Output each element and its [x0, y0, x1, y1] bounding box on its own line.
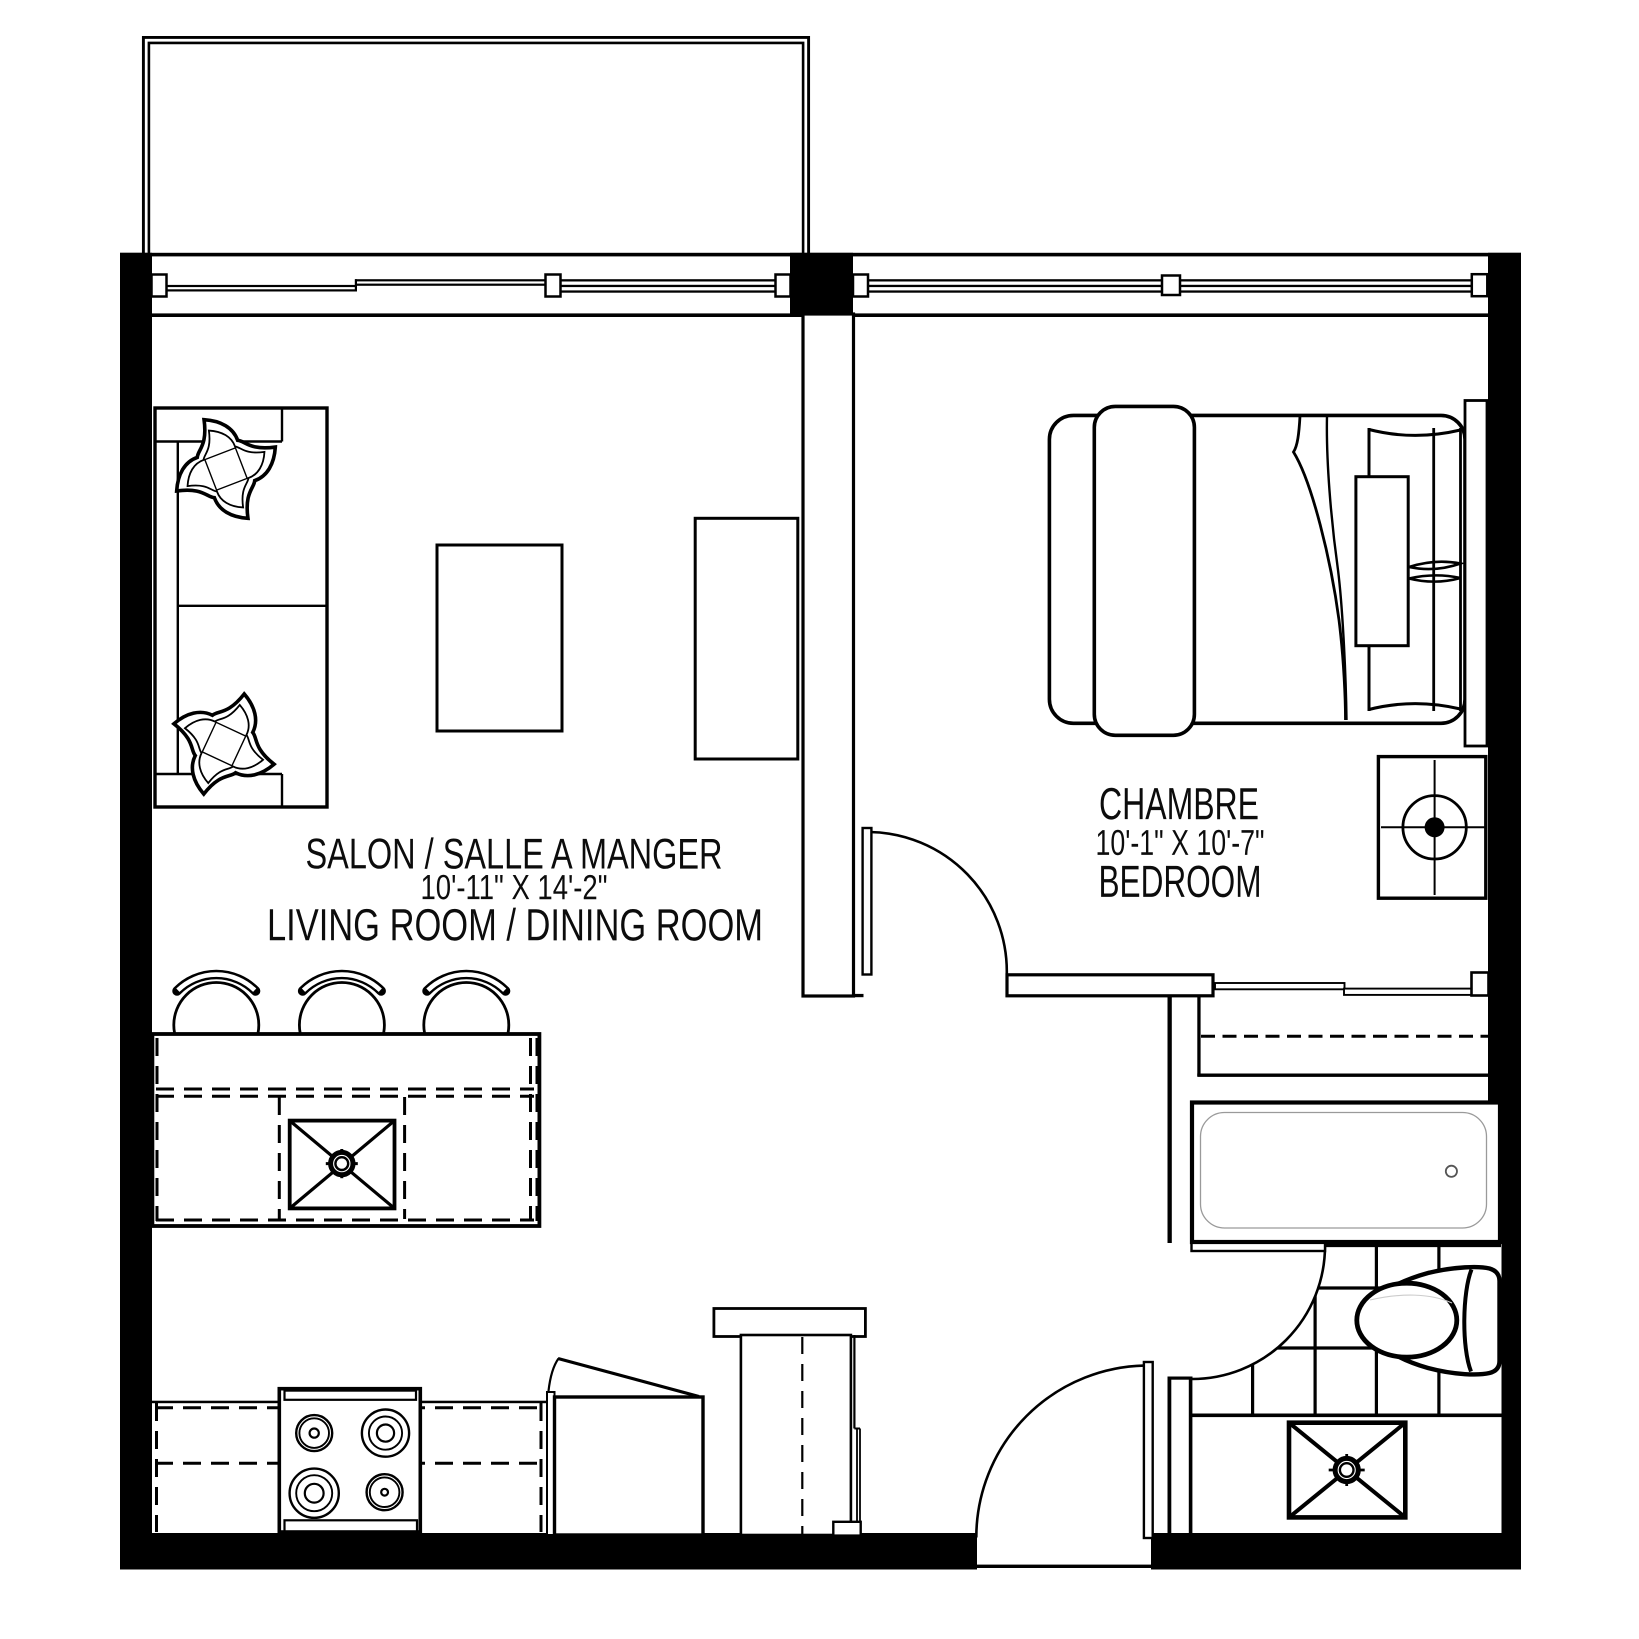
svg-text:BEDROOM: BEDROOM — [1098, 856, 1261, 907]
svg-text:LIVING ROOM / DINING ROOM: LIVING ROOM / DINING ROOM — [267, 899, 763, 950]
